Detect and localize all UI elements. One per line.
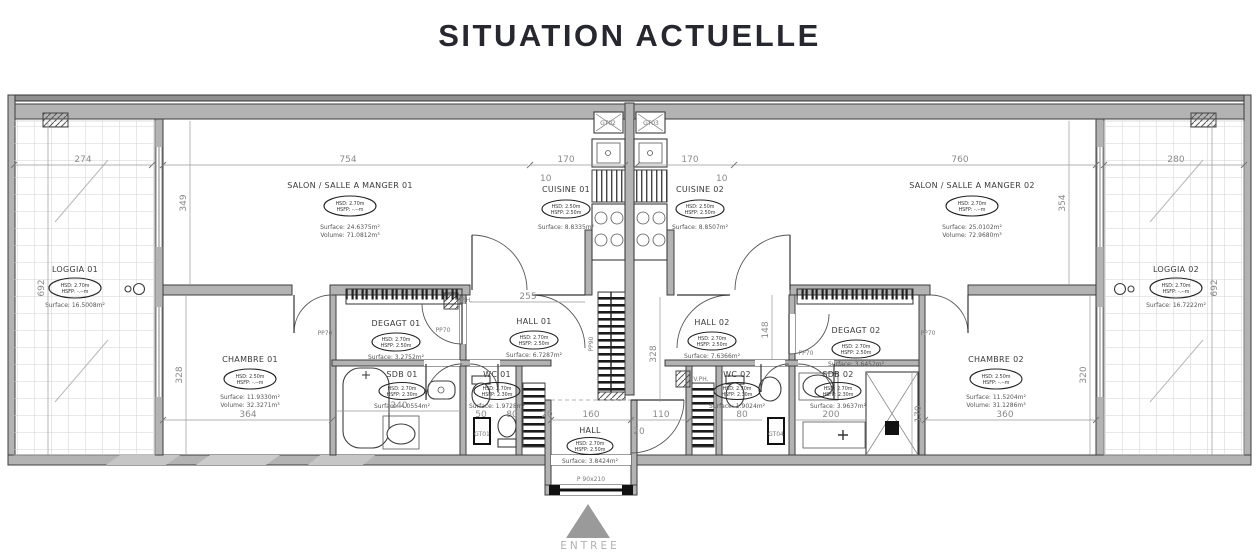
room-label-chambre2: CHAMBRE 02 HSD: 2.50m HSFP: -.--m Surfac… [966,355,1026,409]
hsd: HSD: 2.70m [336,201,365,207]
dim-bottom-wc1a: 50 [475,410,487,420]
hsfp: HSFP: 2.50m [575,447,606,453]
volume: Volume: 31.1286m³ [966,402,1026,409]
dim-right-loggia: 692 [1210,279,1220,296]
hsd: HSD: 2.70m [723,386,752,392]
hsfp: HSFP: -.--m [1163,289,1190,295]
hsfp: HSFP: 2.50m [841,350,872,356]
kitchen-left [592,112,625,260]
surface: Surface: 3.9637m² [810,403,867,410]
hsd: HSD: 2.50m [236,374,265,380]
surface: Surface: 3.2752m² [368,354,425,361]
label-vph-right: V.PH. [693,376,708,383]
hsfp: HSFP: -.--m [62,289,89,295]
hsd: HSD: 2.70m [483,386,512,392]
dim-right-salon: 354 [1058,194,1068,211]
hsd: HSD: 2.70m [520,335,549,341]
room-name: CUISINE 01 [542,185,590,194]
room-name: DEGAGT 02 [832,326,881,335]
dim-top-cuisine1: 170 [557,155,574,165]
entrance-door-label: P 90x210 [577,476,605,483]
room-label-hall-entree: HALL HSD: 2.70m HSFP: 2.50m Surface: 3.8… [562,426,619,465]
hsfp: HSFP: -.--m [983,380,1010,386]
surface: Surface: 3.6452m² [828,361,885,368]
vph-shaft-right [676,371,690,387]
surface: Surface: 8.8335m² [538,224,595,231]
room-label-hall2: HALL 02 HSD: 2.70m HSFP: 2.50m Surface: … [684,318,741,360]
room-label-degagt1: DEGAGT 01 HSD: 2.70m HSFP: 2.50m Surface… [368,319,425,361]
room-name: HALL 02 [694,318,729,327]
room-name: SDB 01 [386,370,417,379]
door-label-pp70-degagt1: PP70 [436,327,451,334]
room-name: HALL 01 [516,317,551,326]
dim-left-salon: 349 [179,194,189,211]
dim-bottom-sdb1: 240 [390,401,407,411]
hsfp: HSFP: 2.50m [697,342,728,348]
dim-hall-a: 20 [541,410,553,420]
dim-hall-b: 160 [582,410,599,420]
label-gt03: GT03 [643,120,659,127]
hsd: HSD: 2.50m [982,374,1011,380]
room-name: WC 02 [723,370,751,379]
room-name: CUISINE 02 [676,185,724,194]
entree-label: ENTREE [560,540,619,552]
hsfp: HSFP: 2.50m [381,343,412,349]
floor-plan: P 90x210 ENTREE LOGGIA 01 HSD: 2.70m HSF… [0,92,1259,552]
room-name: DEGAGT 01 [372,319,421,328]
window-right-bottom [1097,307,1104,397]
label-gt04: GT04 [768,431,784,438]
room-label-cuisine1: CUISINE 01 HSD: 2.50m HSFP: 2.50m Surfac… [538,185,595,231]
dim-right-chambre: 320 [1079,366,1089,383]
label-gt02: GT02 [600,120,616,127]
label-gt01: GT01 [474,431,490,438]
volume: Volume: 32.3271m³ [220,402,280,409]
dim-stair: 328 [649,345,659,362]
door-label-pp70-chambre2: PP70 [921,330,936,337]
wall-shading [106,455,375,465]
room-label-hall1: HALL 01 HSD: 2.70m HSFP: 2.50m Surface: … [506,317,563,359]
hsfp: HSFP: 2.50m [519,341,550,347]
label-vph-left: V.P.H. [456,297,472,304]
surface: Surface: 11.5204m² [966,394,1026,401]
volume: Volume: 72.9680m³ [942,232,1002,239]
dim-top-salon1: 754 [339,155,356,165]
dim-hall2-height: 148 [761,321,771,338]
dim-offset-right: 10 [716,174,728,184]
room-name: CHAMBRE 02 [968,355,1024,364]
dim-offset-left: 10 [540,174,552,184]
dim-bottom-wc2: 80 [736,410,748,420]
surface: Surface: 8.8507m² [672,224,729,231]
room-name: SALON / SALLE A MANGER 01 [287,181,413,190]
dim-hall-d: 110 [652,410,669,420]
window-left-top [156,147,163,247]
room-name: SDB 02 [822,370,853,379]
door-label-pp90: PP90 [588,336,595,351]
dim-bottom-chambre2: 360 [996,410,1013,420]
dim-left-loggia: 692 [37,279,47,296]
hsd: HSD: 2.70m [388,386,417,392]
hsfp: HSFP: 2.50m [551,210,582,216]
hsd: HSD: 2.70m [576,441,605,447]
room-label-chambre1: CHAMBRE 01 HSD: 2.50m HSFP: -.--m Surfac… [220,355,280,409]
surface: Surface: 24.6375m² [320,224,380,231]
surface: Surface: 3.8424m² [562,458,619,465]
room-name: HALL [579,426,601,435]
surface: Surface: 6.7287m² [506,352,563,359]
dim-top-salon2: 760 [951,155,968,165]
surface: Surface: 16.7222m² [1146,302,1206,309]
surface: Surface: 16.5008m² [45,302,105,309]
surface: Surface: 1.9024m² [709,403,766,410]
dim-top-loggia2: 280 [1167,155,1184,165]
door-label-pp70-degagt2: PP70 [799,350,814,357]
room-label-salon2: SALON / SALLE A MANGER 02 HSD: 2.70m HSF… [909,181,1035,239]
room-label-degagt2: DEGAGT 02 HSD: 2.70m HSFP: 2.50m Surface… [828,326,885,368]
surface: Surface: 7.6366m² [684,353,741,360]
room-name: LOGGIA 02 [1153,265,1199,274]
dim-bottom-chambre1: 364 [239,410,256,420]
dim-left-chambre: 328 [175,366,185,383]
window-right-top [1097,147,1104,247]
dim-hall-c: 20 [633,427,645,437]
room-name: WC 01 [483,370,511,379]
bathroom-2-fixtures [799,372,918,455]
hsd: HSD: 2.70m [1162,283,1191,289]
room-label-salon1: SALON / SALLE A MANGER 01 HSD: 2.70m HSF… [287,181,413,239]
surface: Surface: 1.9728m² [469,403,526,410]
hsfp: HSFP: 2.50m [685,210,716,216]
ladder-right [692,383,714,447]
room-name: CHAMBRE 01 [222,355,278,364]
hsfp: HSFP: 2.30m [387,392,418,398]
dim-shower: 170 [914,405,924,422]
window-left-bottom [156,307,163,397]
hsd: HSD: 2.50m [552,204,581,210]
shower [866,372,918,455]
entrance-arrow-icon [566,504,610,538]
dim-hall1-width: 255 [519,292,536,302]
staircase [598,292,625,400]
room-name: SALON / SALLE A MANGER 02 [909,181,1035,190]
dim-top-cuisine2: 170 [681,155,698,165]
hsd: HSD: 2.70m [61,283,90,289]
hsd: HSD: 2.70m [824,386,853,392]
wardrobe-left [346,289,462,304]
hsfp: HSFP: 2.30m [722,392,753,398]
hsd: HSD: 2.70m [382,337,411,343]
wardrobe-right [797,289,913,304]
room-label-cuisine2: CUISINE 02 HSD: 2.50m HSFP: 2.50m Surfac… [672,185,729,231]
hsd: HSD: 2.70m [842,344,871,350]
dim-bottom-wc1b: 80 [506,410,518,420]
hsfp: HSFP: 2.30m [482,392,513,398]
surface: Surface: 11.9330m² [220,394,280,401]
hsfp: HSFP: -.--m [237,380,264,386]
kitchen-right [634,112,667,260]
hsfp: HSFP: -.--m [959,207,986,213]
surface: Surface: 25.0102m² [942,224,1002,231]
hsfp: HSFP: -.--m [337,207,364,213]
hsd: HSD: 2.70m [958,201,987,207]
volume: Volume: 71.0812m³ [320,232,380,239]
dim-top-loggia1: 274 [74,155,91,165]
room-name: LOGGIA 01 [52,265,98,274]
door-label-pp70-chambre1: PP70 [318,330,333,337]
page-title: SITUATION ACTUELLE [0,18,1259,54]
dim-bottom-sdb2: 200 [822,410,839,420]
hsfp: HSFP: 2.30m [823,392,854,398]
hsd: HSD: 2.70m [698,336,727,342]
hsd: HSD: 2.50m [686,204,715,210]
